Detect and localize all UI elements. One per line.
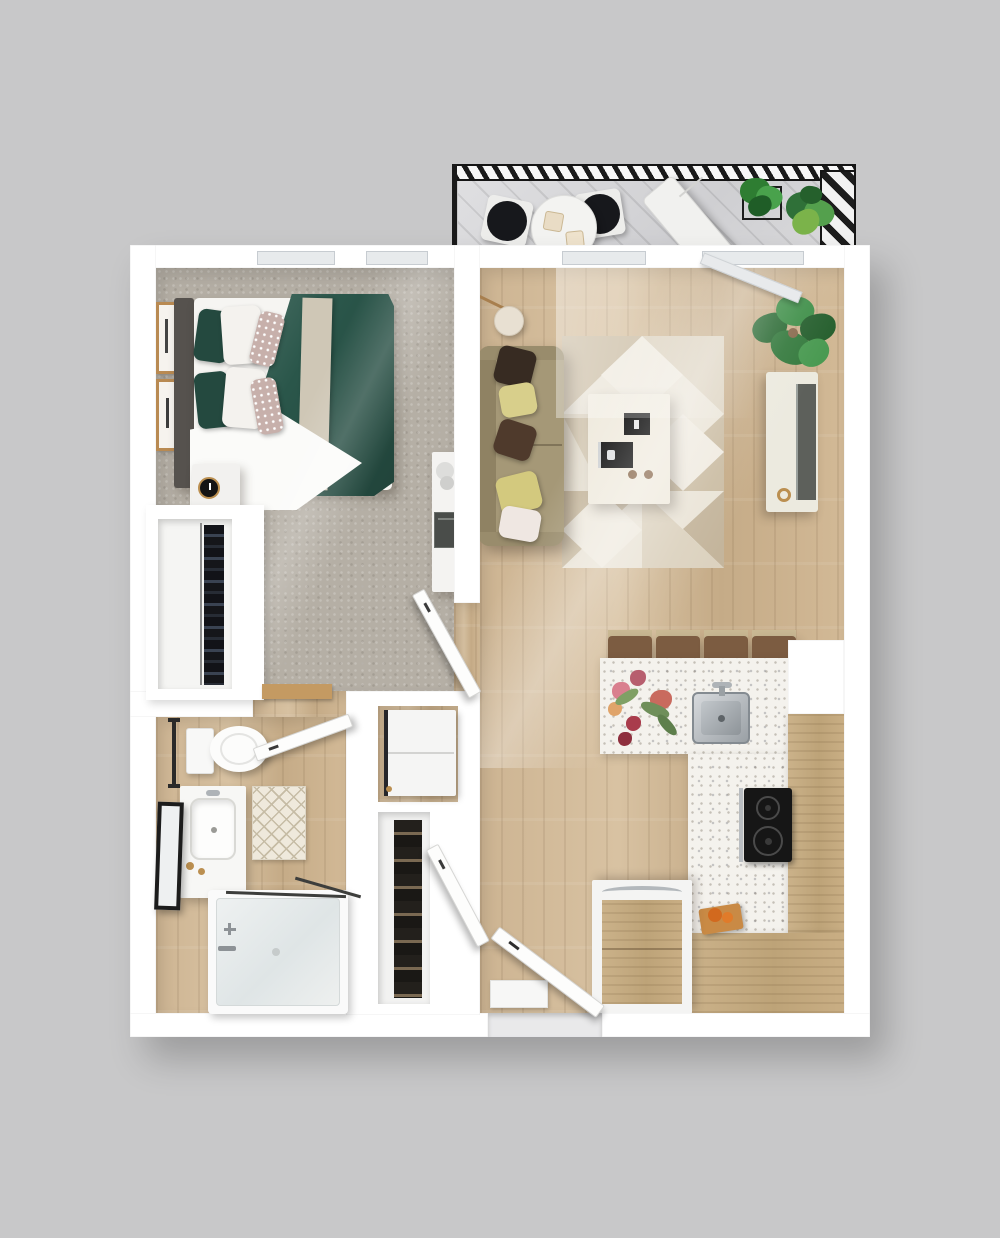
balcony-railing-top bbox=[452, 164, 856, 181]
art-sketch bbox=[166, 398, 169, 428]
vanity-sink bbox=[190, 798, 236, 860]
tv-screen bbox=[796, 384, 816, 500]
wall-bedroom-divider bbox=[454, 245, 480, 603]
leaning-mirror bbox=[154, 802, 184, 911]
balcony-railing-left bbox=[452, 164, 457, 252]
door-handle bbox=[508, 941, 519, 951]
clock-hand bbox=[209, 483, 211, 490]
door-handle bbox=[268, 745, 278, 751]
cooktop bbox=[744, 788, 792, 862]
laptop-keyboard bbox=[438, 518, 454, 520]
fridge-panel-seam bbox=[602, 948, 682, 950]
vanity-faucet bbox=[206, 790, 220, 796]
coffee-table-book bbox=[598, 442, 633, 468]
squash bbox=[708, 908, 722, 922]
coffee-table-book bbox=[624, 413, 650, 435]
flower bbox=[630, 670, 646, 686]
brass-tap bbox=[186, 862, 194, 870]
sofa-pillow-yellow bbox=[497, 381, 538, 419]
entry-door-mat bbox=[490, 980, 548, 1008]
tub-handle-cross bbox=[228, 923, 231, 935]
floor-lamp-shade bbox=[494, 306, 524, 336]
towel-bar bbox=[172, 720, 176, 786]
washer-seam bbox=[388, 752, 454, 754]
door-handle bbox=[423, 602, 430, 612]
closet-hanging-clothes bbox=[204, 525, 224, 685]
bistro-chair-cushion bbox=[487, 201, 527, 241]
squash bbox=[722, 912, 733, 923]
brass-tap bbox=[198, 868, 205, 875]
console-decor-ring bbox=[777, 488, 791, 502]
wall-right bbox=[844, 245, 870, 1037]
kitchen-column bbox=[788, 640, 844, 714]
table-coaster bbox=[628, 470, 637, 479]
fridge-wood-panel bbox=[602, 900, 682, 1004]
living-window bbox=[560, 249, 648, 267]
burner-center bbox=[765, 838, 772, 845]
alarm-clock bbox=[198, 477, 220, 499]
door-handle bbox=[438, 859, 445, 869]
washer-hinge bbox=[386, 786, 392, 792]
flower bbox=[618, 732, 632, 746]
entry-threshold bbox=[488, 1013, 602, 1037]
wall-bottom-right bbox=[602, 1013, 870, 1037]
towel-bar-cap bbox=[168, 718, 180, 722]
floor-plan-canvas bbox=[0, 0, 1000, 1238]
washer-dryer bbox=[384, 710, 456, 796]
bedroom-window bbox=[364, 249, 430, 267]
desk-flowers bbox=[440, 476, 454, 490]
burner-center bbox=[765, 805, 771, 811]
sofa-pillow-white bbox=[498, 505, 543, 543]
coffee-mug bbox=[542, 210, 564, 232]
wall-bottom-left bbox=[130, 1013, 488, 1037]
art-sketch bbox=[165, 319, 168, 353]
linen-closet-shelves bbox=[394, 820, 422, 998]
bath-mat bbox=[252, 786, 306, 860]
cooktop-silver-edge bbox=[739, 788, 743, 862]
tub-faucet bbox=[218, 946, 236, 951]
kitchen-sink bbox=[692, 692, 750, 744]
towel-bar-cap bbox=[168, 784, 180, 788]
sink-faucet-stem bbox=[719, 686, 725, 696]
book-emblem bbox=[634, 420, 639, 429]
table-coaster bbox=[644, 470, 653, 479]
bedroom-window bbox=[255, 249, 337, 267]
sink-drain bbox=[211, 827, 217, 833]
plant-trunk bbox=[788, 328, 798, 338]
lower-cabinets-bottom bbox=[688, 933, 844, 1013]
fridge-handle bbox=[602, 886, 682, 898]
tub-drain bbox=[272, 948, 280, 956]
flower bbox=[626, 716, 641, 731]
flower-arrangement bbox=[606, 664, 690, 750]
sink-drain bbox=[718, 715, 725, 722]
closet-rod bbox=[200, 523, 202, 685]
threshold-mat bbox=[262, 684, 332, 699]
book-emblem bbox=[607, 450, 615, 460]
houseplant bbox=[752, 296, 838, 374]
